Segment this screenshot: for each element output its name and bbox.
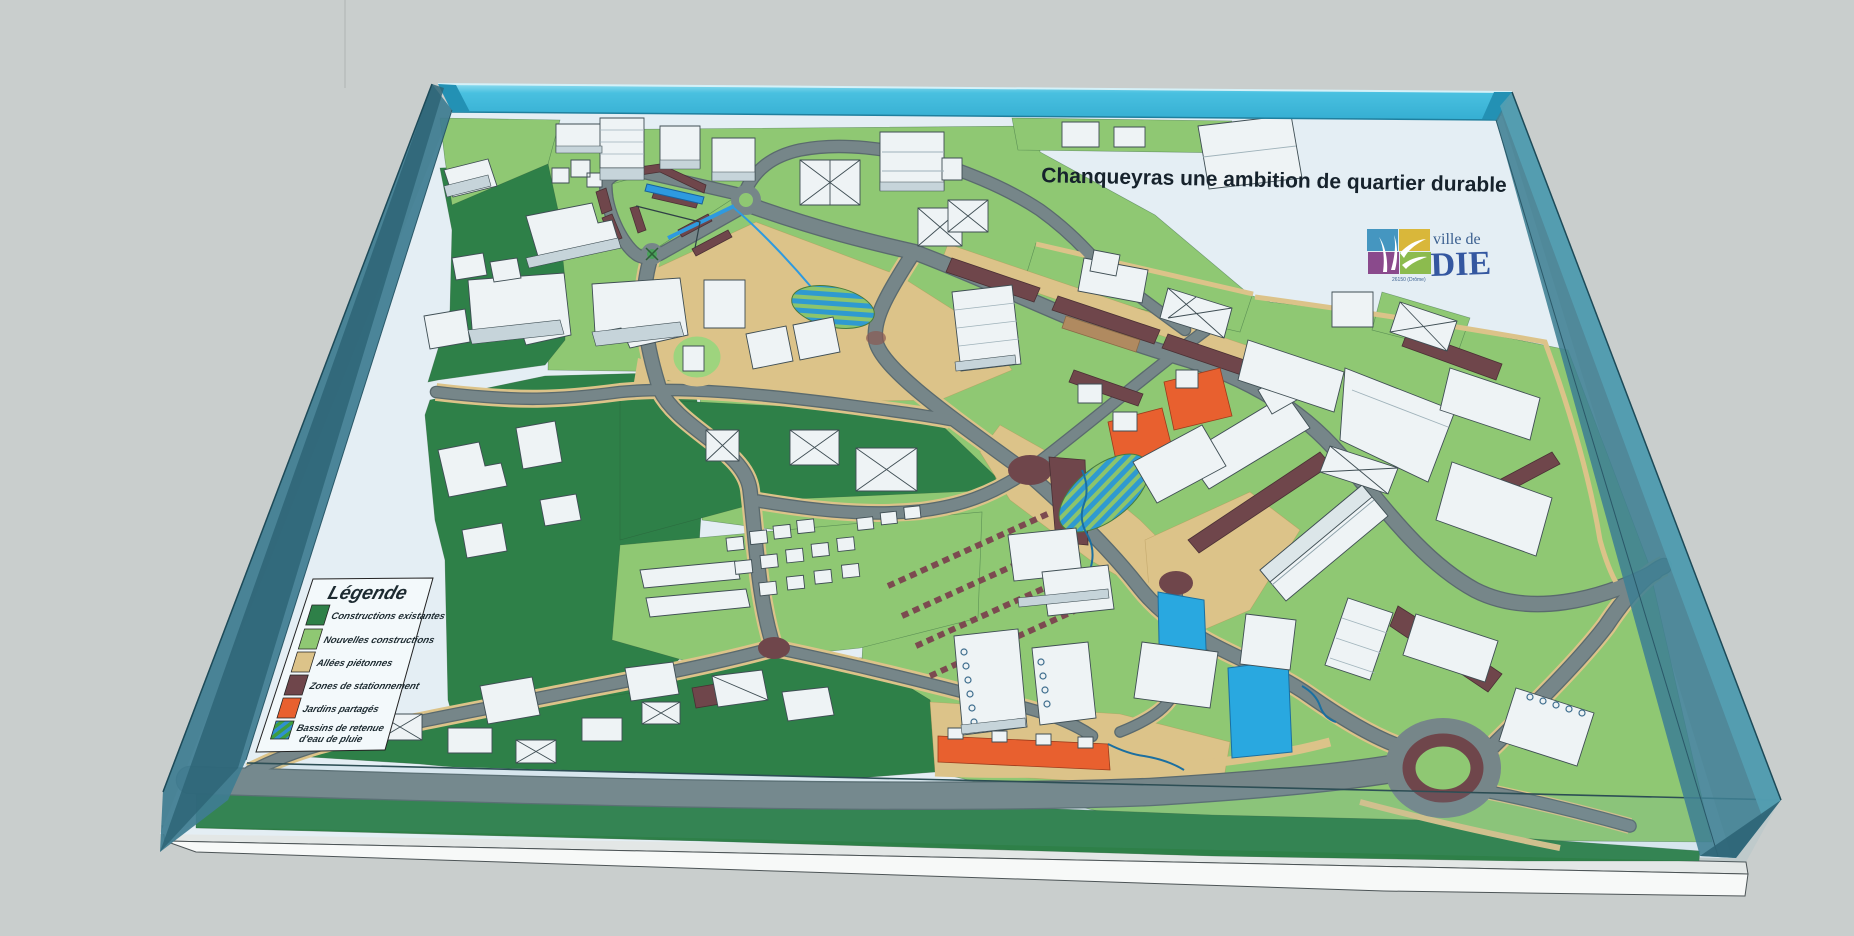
svg-text:d'eau de pluie: d'eau de pluie [298, 734, 365, 745]
svg-text:Constructions existantes: Constructions existantes [330, 611, 447, 622]
svg-text:Allées piétonnes: Allées piétonnes [314, 658, 394, 669]
svg-text:Zones de stationnement: Zones de stationnement [307, 681, 421, 692]
svg-text:Bassins de retenue: Bassins de retenue [295, 723, 386, 734]
svg-text:Jardins partagés: Jardins partagés [301, 704, 381, 715]
svg-text:DIE: DIE [1430, 245, 1492, 284]
svg-text:26150 (Drôme): 26150 (Drôme) [1392, 277, 1426, 283]
svg-text:Nouvelles constructions: Nouvelles constructions [322, 635, 436, 646]
svg-text:Légende: Légende [325, 582, 410, 603]
